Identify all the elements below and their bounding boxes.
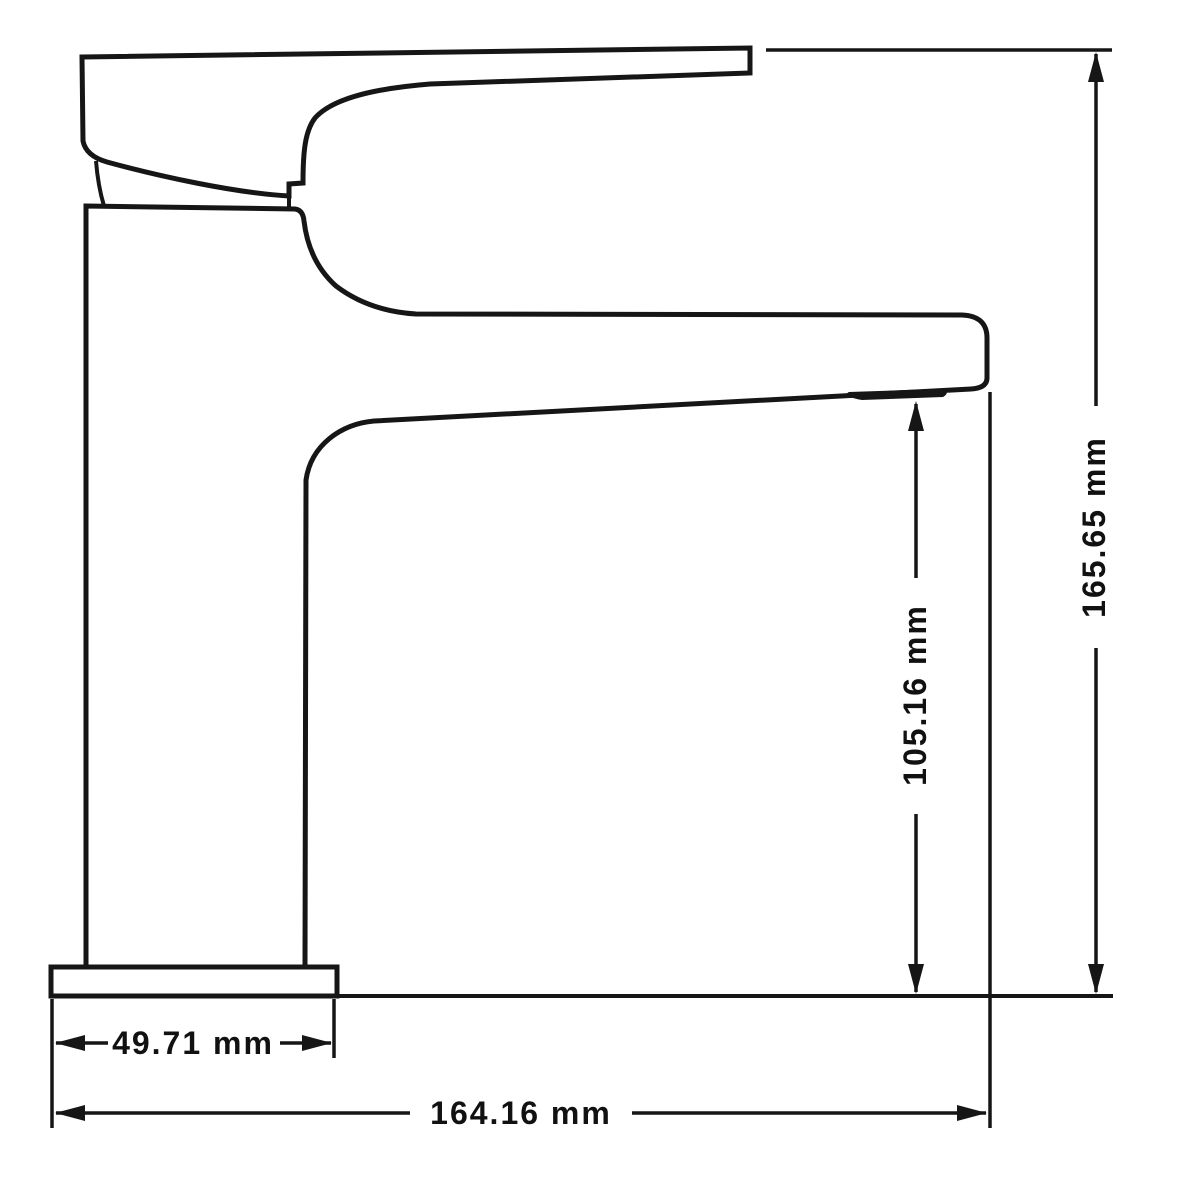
overall-length-label: 164.16 mm — [430, 1095, 612, 1131]
arrow-left — [55, 1105, 85, 1121]
arrow-left — [55, 1035, 85, 1051]
arrow-down — [1088, 964, 1104, 994]
arrow-right — [957, 1105, 987, 1121]
technical-drawing-page: 165.65 mm 105.16 mm 49.71 mm — [0, 0, 1191, 1200]
dimension-base-width: 49.71 mm — [52, 999, 334, 1128]
arrow-down — [908, 964, 924, 994]
faucet-dimension-drawing: 165.65 mm 105.16 mm 49.71 mm — [0, 0, 1191, 1200]
faucet-outline — [51, 48, 1113, 996]
dimension-spout-outlet-height: 105.16 mm — [897, 401, 933, 994]
spout-outlet-height-label: 105.16 mm — [897, 604, 933, 786]
overall-height-label: 165.65 mm — [1076, 436, 1112, 618]
handle-lever-outline — [82, 48, 750, 196]
dimension-overall-height: 165.65 mm — [766, 50, 1112, 994]
arrow-up — [908, 401, 924, 431]
arrow-up — [1088, 52, 1104, 82]
base-width-label: 49.71 mm — [112, 1025, 274, 1061]
arrow-right — [302, 1035, 332, 1051]
body-and-spout-outline — [86, 206, 987, 967]
neck-left-edge — [96, 161, 104, 206]
base-plate — [51, 967, 337, 996]
